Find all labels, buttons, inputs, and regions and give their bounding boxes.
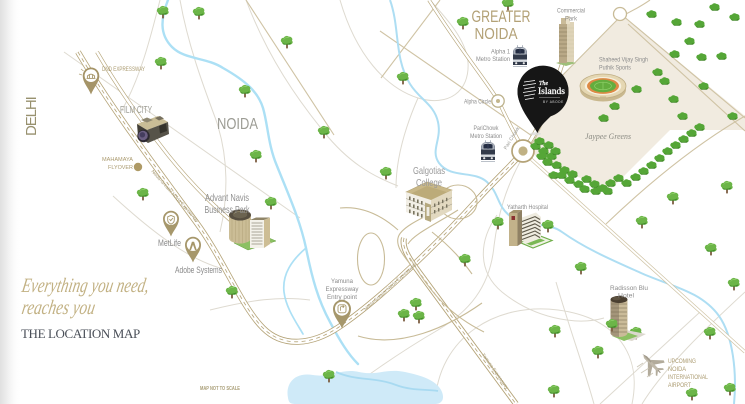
svg-text:THE LOCATION MAP: THE LOCATION MAP [21,326,143,341]
svg-text:Yamuna: Yamuna [331,278,353,285]
svg-text:Metro Station: Metro Station [476,56,510,63]
svg-text:UPCOMING: UPCOMING [668,358,696,365]
svg-text:DND EXPRESSWAY: DND EXPRESSWAY [102,66,145,73]
svg-text:Puthik Sports: Puthik Sports [599,65,631,72]
svg-text:BY ABODE: BY ABODE [543,100,564,104]
svg-text:Advant Navis: Advant Navis [205,193,249,204]
svg-text:MAHAMAYA: MAHAMAYA [102,157,133,163]
svg-text:MAP NOT TO SCALE: MAP NOT TO SCALE [200,386,240,392]
svg-text:PariChowk: PariChowk [474,125,499,132]
svg-text:Hotel: Hotel [618,293,634,300]
svg-text:Alpha 1: Alpha 1 [491,49,510,56]
svg-text:FILM CITY: FILM CITY [120,105,152,116]
svg-text:Park: Park [565,16,578,23]
svg-text:Metro Station: Metro Station [470,133,502,140]
svg-text:Jaypee Greens: Jaypee Greens [585,132,631,141]
svg-text:Adobe Systems: Adobe Systems [175,265,222,275]
svg-text:AIRPORT: AIRPORT [668,382,691,389]
svg-text:Entry point: Entry point [327,294,357,301]
svg-text:Galgotias: Galgotias [413,166,445,177]
svg-text:NOIDA: NOIDA [217,116,258,133]
svg-text:reaches you: reaches you [20,297,97,319]
svg-text:Business Park: Business Park [205,205,251,216]
svg-text:College: College [416,178,442,189]
svg-text:Expressway: Expressway [326,286,360,293]
svg-text:INTERNATIONAL: INTERNATIONAL [668,374,708,381]
svg-text:Everything you need,: Everything you need, [19,275,151,297]
svg-text:Radisson Blu: Radisson Blu [610,285,648,292]
svg-text:NOIDA: NOIDA [668,366,687,373]
svg-text:Yatharth Hospital: Yatharth Hospital [507,204,548,211]
svg-text:MetLife: MetLife [158,238,181,248]
svg-text:NOIDA: NOIDA [475,26,519,43]
svg-text:DELHI: DELHI [23,96,40,136]
svg-text:FLYOVER: FLYOVER [108,165,133,171]
svg-text:Commercial: Commercial [557,8,585,15]
svg-text:Alpha Circle: Alpha Circle [464,99,491,106]
svg-text:Islands: Islands [538,87,565,97]
svg-text:GREATER: GREATER [472,8,531,26]
svg-text:Shaheed Vijay Singh: Shaheed Vijay Singh [599,57,648,64]
